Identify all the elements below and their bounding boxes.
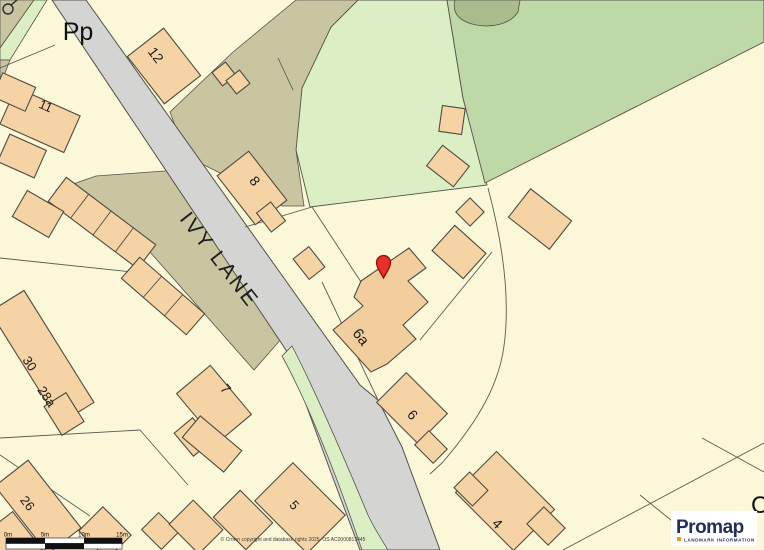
scale-tick-0: 0m [4,533,12,539]
logo-tagline: LANDMARK INFORMATION [684,538,755,543]
copyright-attribution: © Crown copyright and database rights 20… [221,536,366,543]
scale-tick-3: 15m [116,533,128,539]
map-viewport[interactable]: Pp IVY LANE 12 11 8 6a 7 30 28a 26 5 6 4… [0,0,764,550]
building-ne-1 [439,106,465,135]
logo-bullet-icon [677,537,681,541]
scale-tick-2: 10m [78,533,90,539]
annotation-pp: Pp [63,18,94,46]
promap-logo: Promap LANDMARK INFORMATION [671,511,757,546]
logo-text: Promap [676,517,744,538]
map-canvas[interactable]: Pp IVY LANE 12 11 8 6a 7 30 28a 26 5 6 4… [0,0,764,550]
scale-tick-1: 5m [41,533,49,539]
